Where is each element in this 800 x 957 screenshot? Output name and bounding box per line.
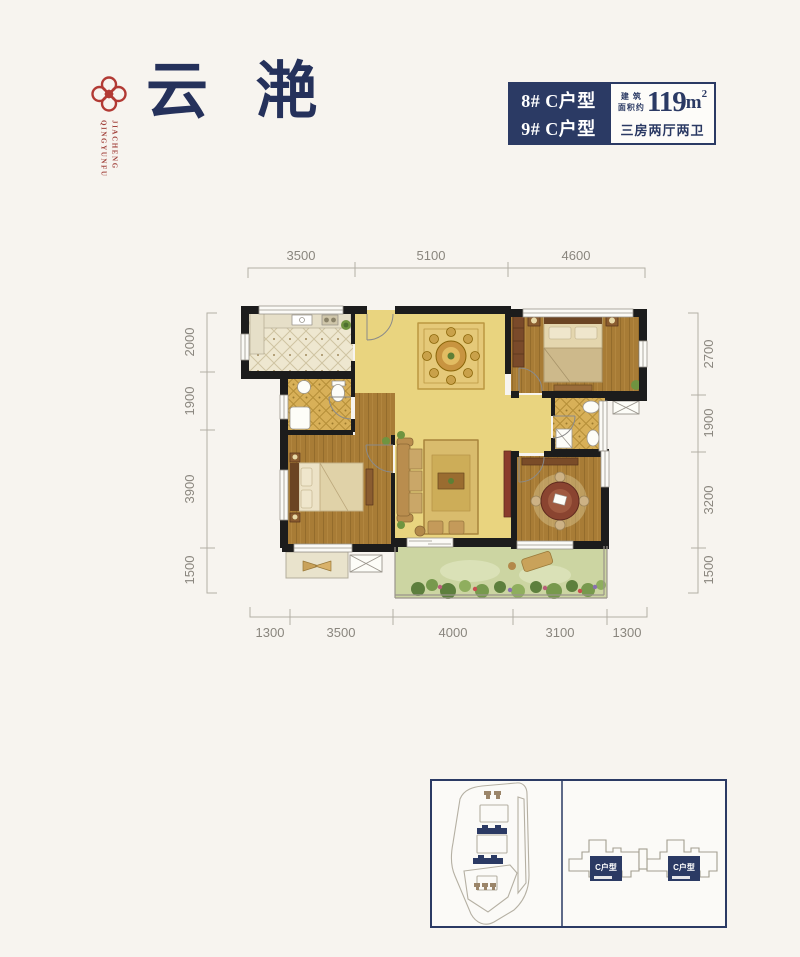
dim-label: 1900 (182, 387, 197, 416)
unit-c-label: C户型 (673, 862, 695, 872)
area-label: 建 筑 面积约 (618, 92, 645, 113)
dim-label: 2000 (182, 328, 197, 357)
dim-label: 3200 (701, 486, 716, 515)
brand-name-qingyunfu: QINGYUNFU (100, 120, 108, 194)
dim-label: 1500 (701, 556, 716, 585)
dim-label: 1300 (613, 625, 642, 640)
unit-specs: 建 筑 面积约 119 m 2 三房两厅两卫 (609, 82, 716, 145)
dim-label: 1900 (701, 409, 716, 438)
tower-connector (639, 849, 647, 869)
dim-label: 3900 (182, 475, 197, 504)
brochure-page: QINGYUNFU JIACHENG 云 滟 8# C户型 9# C户型 建 筑… (0, 0, 800, 957)
dim-label: 3500 (327, 625, 356, 640)
brand-name: QINGYUNFU JIACHENG (100, 120, 119, 194)
area-superscript: 2 (702, 89, 708, 100)
flower-bed (286, 552, 348, 578)
unit-info-box: 8# C户型 9# C户型 建 筑 面积约 119 m 2 三房两厅两卫 (508, 82, 716, 145)
unit-number-8: 8# C户型 (521, 87, 596, 113)
page-title: 云 滟 (146, 58, 318, 126)
layout-spec: 三房两厅两卫 (620, 120, 704, 139)
dim-label: 3500 (287, 248, 316, 263)
dim-label: 2700 (701, 340, 716, 369)
plant (397, 431, 405, 439)
shower (290, 407, 310, 429)
sink (298, 381, 311, 394)
unit-numbers: 8# C户型 9# C户型 (508, 82, 609, 145)
area-row: 建 筑 面积约 119 m 2 (618, 88, 707, 117)
dim-label: 1300 (256, 625, 285, 640)
area-value: 119 (647, 88, 686, 117)
sofa (397, 444, 410, 516)
area-label-top: 建 筑 (618, 92, 645, 102)
dim-label: 3100 (546, 625, 575, 640)
floorplan: 3500 5100 4600 1300 3500 4000 3100 1300 … (170, 235, 770, 675)
brand-knot-icon (87, 72, 131, 116)
dim-label: 4600 (562, 248, 591, 263)
dim-label: 5100 (417, 248, 446, 263)
sink (583, 401, 599, 413)
toilet (587, 430, 599, 446)
unit-number-9: 9# C户型 (521, 115, 596, 141)
toilet (332, 385, 345, 402)
unit-c-label: C户型 (595, 862, 617, 872)
brand-logo: QINGYUNFU JIACHENG (76, 72, 142, 194)
bookshelf (522, 458, 578, 465)
plant (382, 437, 390, 445)
brand-name-jiacheng: JIACHENG (111, 120, 119, 194)
area-unit: m (686, 93, 702, 112)
location-diagrams: C户型 C户型 (430, 779, 727, 928)
vestibule (355, 393, 395, 437)
tv-cabinet (504, 451, 511, 517)
area-label-bottom: 面积约 (618, 103, 645, 113)
dim-label: 4000 (439, 625, 468, 640)
plant (397, 521, 405, 529)
dim-label: 1500 (182, 556, 197, 585)
